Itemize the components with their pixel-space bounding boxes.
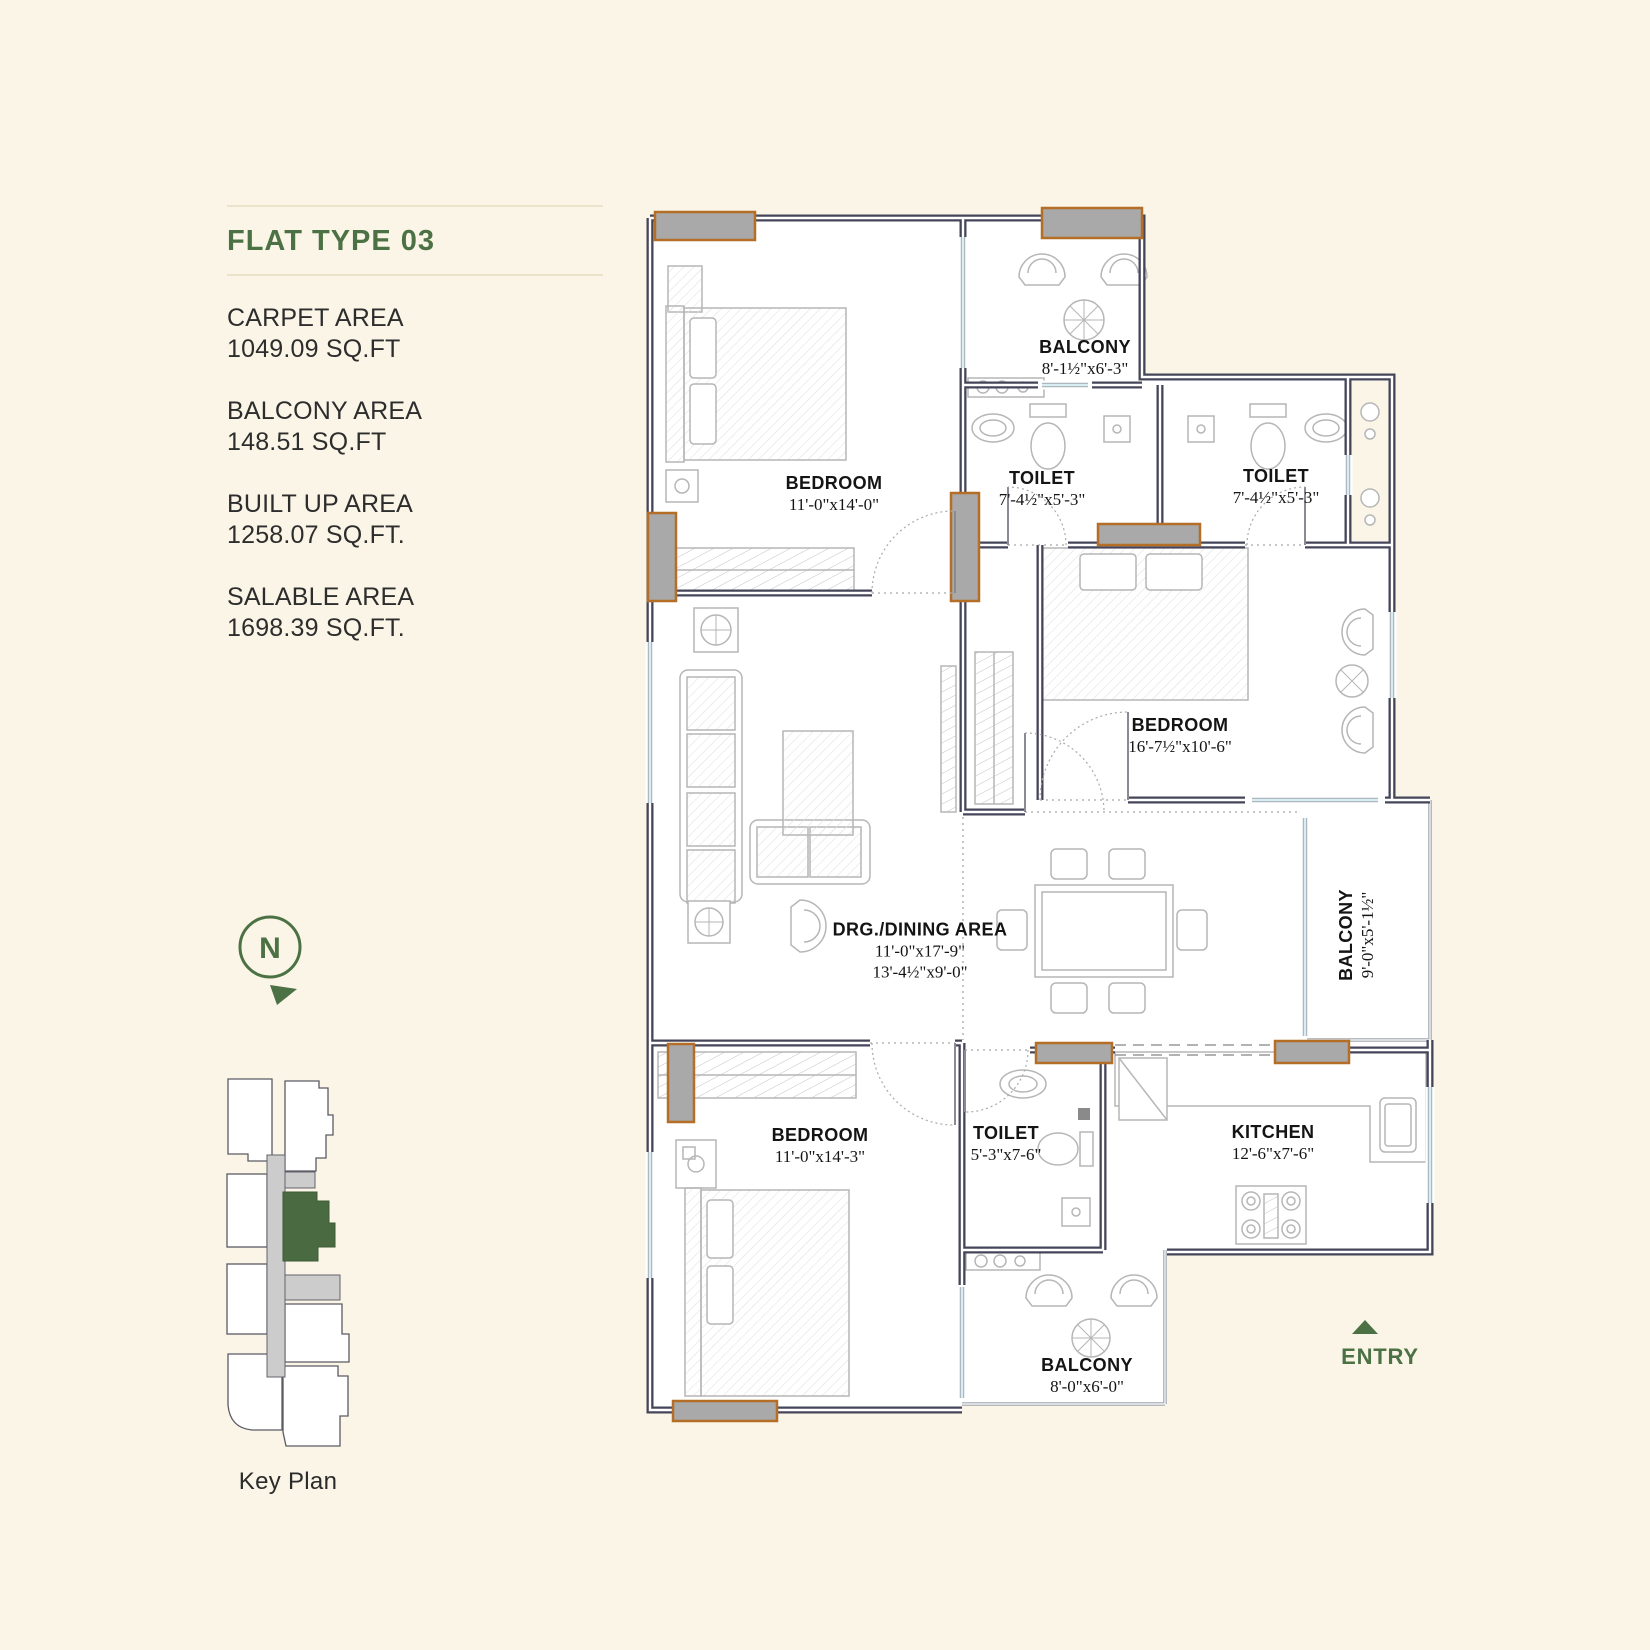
area-item-carpet: CARPET AREA 1049.09 SQ.FT: [227, 303, 603, 365]
room-dims: 9'-0"x5'-1½": [1358, 889, 1378, 981]
area-value: 1258.07 SQ.FT.: [227, 520, 603, 551]
wardrobe-icon: [975, 652, 1013, 804]
key-plan: [218, 1075, 354, 1451]
room-name: DRG./DINING AREA: [833, 920, 1008, 941]
room-dims: 13'-4½"x9'-0": [833, 963, 1008, 983]
page-title: FLAT TYPE 03: [227, 225, 603, 258]
room-dims: 7'-4½"x5'-3": [999, 490, 1086, 510]
room-dims: 11'-0"x14'-3": [772, 1147, 869, 1167]
entry-label: ENTRY: [1341, 1344, 1419, 1370]
area-label: BALCONY AREA: [227, 396, 603, 427]
room-label-bedroom-bottom: BEDROOM 11'-0"x14'-3": [772, 1125, 869, 1167]
divider: [227, 274, 603, 276]
divider: [227, 205, 603, 207]
room-dims: 11'-0"x17'-9": [833, 942, 1008, 962]
room-name: KITCHEN: [1232, 1122, 1315, 1143]
compass-pointer-icon: [270, 985, 297, 1005]
wardrobe-icon: [658, 548, 854, 592]
room-name: BALCONY: [1039, 337, 1131, 358]
room-label-toilet-1: TOILET 7'-4½"x5'-3": [999, 468, 1086, 510]
area-item-built-up: BUILT UP AREA 1258.07 SQ.FT.: [227, 489, 603, 551]
room-label-drg-dining: DRG./DINING AREA 11'-0"x17'-9" 13'-4½"x9…: [833, 920, 1008, 983]
room-name: TOILET: [999, 468, 1086, 489]
wash-basin-icon: [966, 1252, 1040, 1270]
room-label-bedroom-top-left: BEDROOM 11'-0"x14'-0": [786, 473, 883, 515]
room-name: BEDROOM: [1128, 715, 1232, 736]
area-item-salable: SALABLE AREA 1698.39 SQ.FT.: [227, 582, 603, 644]
room-dims: 8'-1½"x6'-3": [1039, 359, 1131, 379]
room-label-toilet-2: TOILET 7'-4½"x5'-3": [1233, 466, 1320, 508]
area-label: CARPET AREA: [227, 303, 603, 334]
room-dims: 7'-4½"x5'-3": [1233, 488, 1320, 508]
room-name: TOILET: [1233, 466, 1320, 487]
room-dims: 12'-6"x7'-6": [1232, 1144, 1315, 1164]
area-label: SALABLE AREA: [227, 582, 603, 613]
info-panel: FLAT TYPE 03 CARPET AREA 1049.09 SQ.FT B…: [227, 205, 603, 675]
area-label: BUILT UP AREA: [227, 489, 603, 520]
room-label-balcony-right: BALCONY 9'-0"x5'-1½": [1336, 889, 1378, 981]
area-value: 1049.09 SQ.FT: [227, 334, 603, 365]
bed-icon: [1042, 548, 1248, 700]
room-name: BALCONY: [1041, 1355, 1133, 1376]
key-plan-caption: Key Plan: [239, 1468, 337, 1496]
tv-unit-icon: [941, 666, 956, 812]
floor-plan-page: BEDROOM 11'-0"x14'-0" BALCONY 8'-1½"x6'-…: [0, 0, 1650, 1650]
north-compass-icon: N: [232, 909, 308, 1011]
area-item-balcony: BALCONY AREA 148.51 SQ.FT: [227, 396, 603, 458]
room-label-bedroom-right: BEDROOM 16'-7½"x10'-6": [1128, 715, 1232, 757]
room-name: BEDROOM: [772, 1125, 869, 1146]
room-name: BEDROOM: [786, 473, 883, 494]
room-dims: 16'-7½"x10'-6": [1128, 737, 1232, 757]
room-label-toilet-3: TOILET 5'-3"x7-6": [971, 1123, 1042, 1165]
room-label-balcony-bottom: BALCONY 8'-0"x6'-0": [1041, 1355, 1133, 1397]
room-label-balcony-top: BALCONY 8'-1½"x6'-3": [1039, 337, 1131, 379]
area-value: 1698.39 SQ.FT.: [227, 613, 603, 644]
compass-letter: N: [259, 932, 281, 965]
room-name: BALCONY: [1336, 889, 1357, 981]
room-name: TOILET: [971, 1123, 1042, 1144]
entry-arrow-icon: [1352, 1320, 1378, 1334]
room-dims: 8'-0"x6'-0": [1041, 1377, 1133, 1397]
room-dims: 5'-3"x7-6": [971, 1145, 1042, 1165]
area-value: 148.51 SQ.FT: [227, 427, 603, 458]
highlighted-unit: [283, 1192, 335, 1261]
room-label-kitchen: KITCHEN 12'-6"x7'-6": [1232, 1122, 1315, 1164]
area-list: CARPET AREA 1049.09 SQ.FT BALCONY AREA 1…: [227, 303, 603, 644]
room-dims: 11'-0"x14'-0": [786, 495, 883, 515]
